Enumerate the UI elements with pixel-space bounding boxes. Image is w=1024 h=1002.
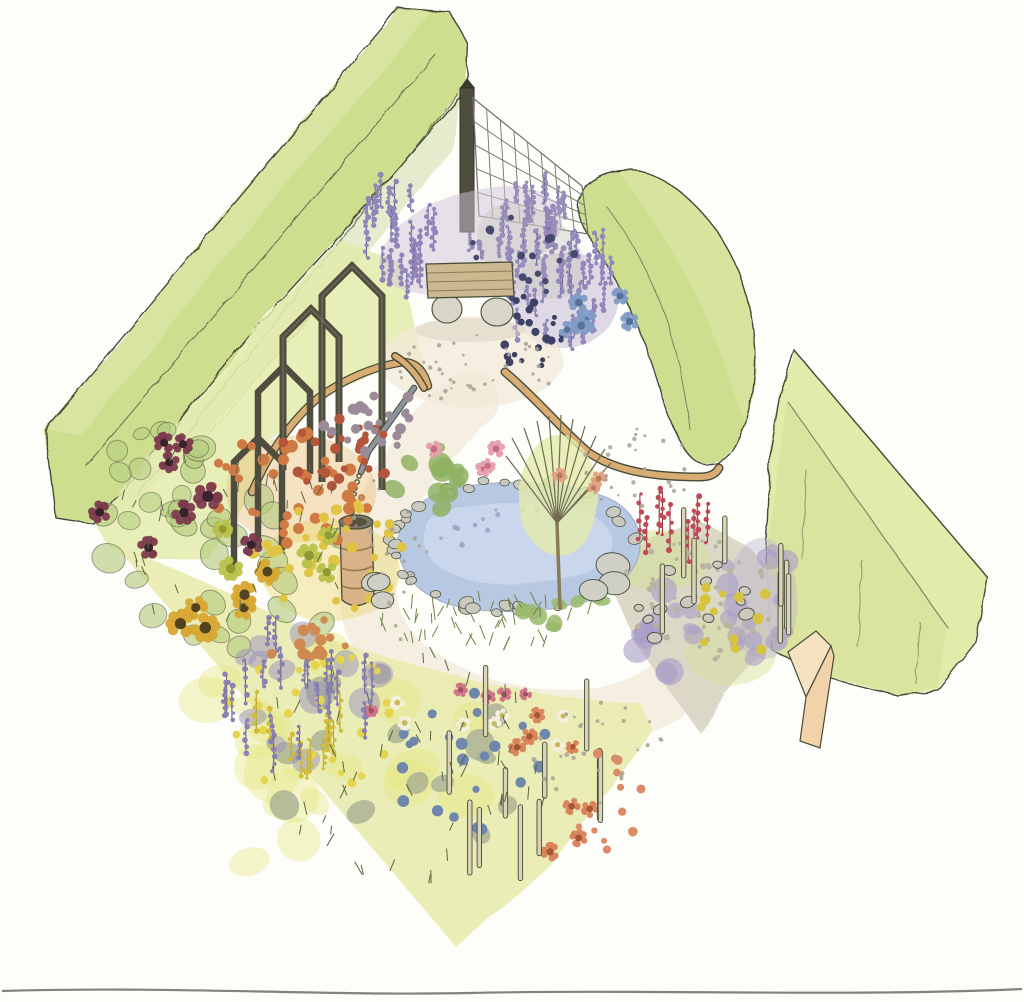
bench-stone-leg	[432, 295, 462, 323]
bench-stone-leg	[481, 298, 513, 326]
garden-illustration-canvas	[0, 0, 1024, 1002]
garden-illustration	[0, 0, 1024, 1002]
